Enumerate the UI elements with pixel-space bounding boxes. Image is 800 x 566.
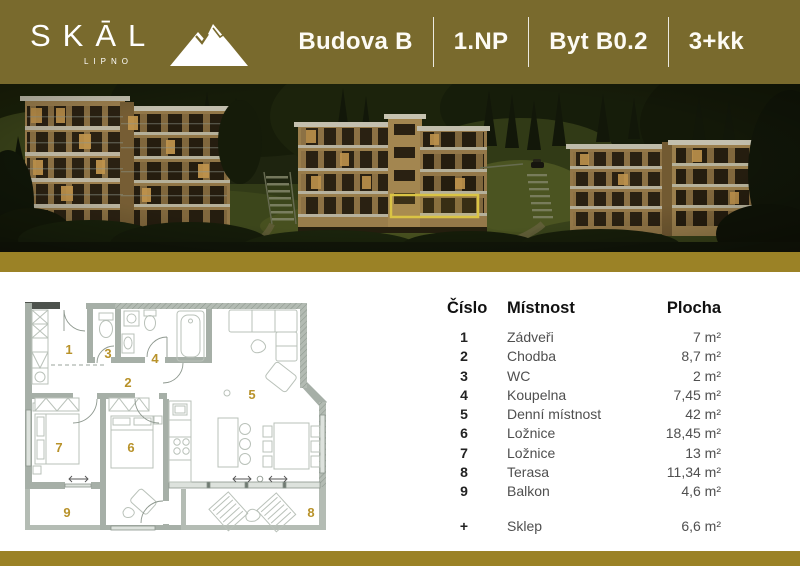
apartment-label: Byt B0.2 [529, 28, 667, 56]
render-illustration [0, 84, 800, 252]
room-name: Balkon [481, 482, 550, 501]
room-area: 4,6 m² [681, 482, 721, 501]
room-area: 2 m² [693, 367, 721, 386]
room-name: Ložnice [481, 444, 555, 463]
room-area: 11,34 m² [667, 463, 721, 482]
room-number: 7 [447, 444, 481, 463]
room-area: 6,6 m² [681, 517, 721, 536]
col-header-number: Číslo [447, 299, 481, 318]
room-number: 4 [447, 386, 481, 405]
room-area: 7 m² [693, 328, 721, 347]
table-row: 2 Chodba 8,7 m² [447, 347, 721, 366]
room-area: 7,45 m² [674, 386, 721, 405]
table-row: 3 WC 2 m² [447, 367, 721, 386]
room-area: 8,7 m² [681, 347, 721, 366]
brand-subtitle: LIPNO [84, 57, 133, 66]
plan-room-label-4: 4 [151, 351, 159, 366]
floor-plan: 1 2 3 4 5 6 7 8 9 [15, 290, 345, 548]
gold-divider-bar [0, 252, 800, 272]
room-name: Koupelna [481, 386, 566, 405]
table-row: 7 Ložnice 13 m² [447, 444, 721, 463]
col-header-area: Plocha [667, 299, 721, 318]
plan-furniture [32, 310, 320, 532]
table-row: 9 Balkon 4,6 m² [447, 482, 721, 501]
table-row: 1 Zádveři 7 m² [447, 328, 721, 347]
table-row: 5 Denní místnost 42 m² [447, 405, 721, 424]
room-number: 5 [447, 405, 481, 424]
room-name: Zádveři [481, 328, 554, 347]
building-render-photo [0, 84, 800, 252]
room-number: 8 [447, 463, 481, 482]
table-header: Číslo Místnost Plocha [447, 299, 721, 318]
table-row: 6 Ložnice 18,45 m² [447, 424, 721, 443]
plan-room-label-1: 1 [65, 342, 72, 357]
brand-logo: SKĀL LIPNO [30, 10, 250, 76]
mountain-icon [168, 20, 252, 72]
room-name: Chodba [481, 347, 556, 366]
plan-room-label-9: 9 [63, 505, 70, 520]
room-number: + [447, 517, 481, 536]
table-row-cellar: + Sklep 6,6 m² [447, 517, 721, 536]
plan-room-label-8: 8 [307, 505, 314, 520]
layout-label: 3+kk [669, 28, 764, 56]
table-row: 8 Terasa 11,34 m² [447, 463, 721, 482]
room-name: Ložnice [481, 424, 555, 443]
table-row: 4 Koupelna 7,45 m² [447, 386, 721, 405]
room-number: 6 [447, 424, 481, 443]
room-name: Sklep [481, 517, 542, 536]
plan-room-label-5: 5 [248, 387, 255, 402]
room-number: 9 [447, 482, 481, 501]
plan-room-label-3: 3 [104, 346, 111, 361]
brand-name: SKĀL [30, 18, 157, 54]
plan-room-label-6: 6 [127, 440, 134, 455]
unit-info: Budova B 1.NP Byt B0.2 3+kk [278, 0, 764, 84]
room-name: Terasa [481, 463, 549, 482]
room-table: Číslo Místnost Plocha 1 Zádveři 7 m² 2 C… [447, 299, 721, 536]
floor-label: 1.NP [434, 28, 529, 56]
plan-room-label-7: 7 [55, 440, 62, 455]
building-label: Budova B [278, 28, 432, 56]
room-number: 3 [447, 367, 481, 386]
footer-bar [0, 551, 800, 566]
col-header-room: Místnost [481, 299, 575, 318]
plan-room-label-2: 2 [124, 375, 131, 390]
room-area: 42 m² [685, 405, 721, 424]
room-number: 2 [447, 347, 481, 366]
room-name: Denní místnost [481, 405, 601, 424]
room-area: 18,45 m² [666, 424, 721, 443]
room-area: 13 m² [685, 444, 721, 463]
header: SKĀL LIPNO Budova B 1.NP Byt B0.2 3+kk [0, 0, 800, 84]
room-number: 1 [447, 328, 481, 347]
brochure-page: SKĀL LIPNO Budova B 1.NP Byt B0.2 3+kk [0, 0, 800, 566]
room-name: WC [481, 367, 530, 386]
